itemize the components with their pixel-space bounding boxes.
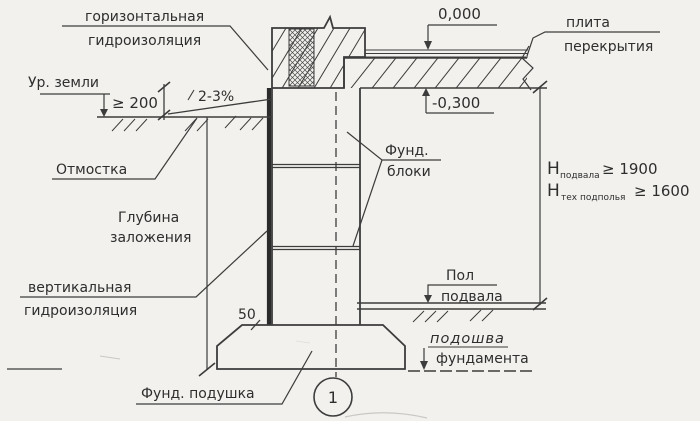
pad-label: Фунд. подушка — [141, 386, 255, 402]
dim-basement-height: H подвала ≥ 1900 H тех подполья ≥ 1600 — [533, 81, 690, 310]
floor-label-1: Пол — [446, 268, 474, 284]
node-number: 1 — [328, 388, 338, 407]
label-slab: плита перекрытия — [527, 15, 660, 56]
slab-label-2: перекрытия — [564, 39, 653, 55]
arrow-down-icon — [424, 41, 432, 50]
blocks-label-2: блоки — [387, 164, 431, 180]
footing-pad — [217, 325, 405, 369]
dim-elev-minus300: -0,300 — [422, 88, 494, 113]
label-blind-area: Отмостка — [52, 118, 197, 179]
elevation-minus-label: -0,300 — [432, 94, 480, 112]
h2-value: ≥ 1600 — [634, 182, 690, 200]
sole-label-2: фундамента — [436, 351, 529, 367]
label-foundation-pad: Фунд. подушка 50 — [136, 307, 312, 404]
arrow-down-icon — [420, 361, 428, 370]
horiz-wp-label-2: гидроизоляция — [88, 33, 201, 49]
dim-elev-zero: 0,000 — [424, 5, 497, 50]
arrow-down-icon — [100, 109, 108, 117]
label-basement-floor: Пол подвала — [424, 268, 503, 305]
h2-symbol: H — [547, 181, 560, 201]
h1-value: ≥ 1900 — [602, 160, 658, 178]
blind-area-label: Отмостка — [56, 162, 127, 178]
foundation-section-drawing: 0,000 -0,300 плита перекрытия горизонтал… — [0, 0, 700, 421]
elevation-zero-label: 0,000 — [438, 5, 481, 23]
dim-50-label: 50 — [238, 307, 256, 323]
vert-wp-label-1: вертикальная — [28, 280, 131, 296]
label-foundation-depth: Глубина заложения — [110, 117, 215, 376]
label-slope: 2-3% — [188, 89, 234, 105]
h1-subscript: подвала — [560, 171, 600, 181]
dim-200-label: ≥ 200 — [112, 94, 158, 112]
foundation-wall — [269, 88, 360, 377]
horizontal-waterproofing-strip — [289, 29, 314, 86]
label-ground-level: Ур. земли ≥ 200 — [28, 75, 170, 120]
slab-label-1: плита — [566, 15, 610, 31]
node-marker: 1 — [314, 378, 352, 416]
depth-label-1: Глубина — [118, 210, 179, 226]
horiz-wp-label-1: горизонтальная — [85, 9, 204, 25]
h1-symbol: H — [547, 159, 560, 179]
slab-break-mark — [522, 46, 533, 90]
arrow-up-icon — [422, 88, 430, 96]
ground-level-label: Ур. земли — [28, 75, 99, 91]
h2-subscript: тех подполья — [561, 193, 625, 203]
arrow-down-icon — [424, 295, 432, 303]
label-horizontal-waterproofing: горизонтальная гидроизоляция — [62, 9, 268, 70]
slope-label: 2-3% — [198, 89, 234, 105]
depth-label-2: заложения — [110, 230, 191, 246]
plinth-block — [240, 17, 404, 105]
floor-slab — [344, 46, 547, 92]
vert-wp-label-2: гидроизоляция — [24, 303, 137, 319]
sole-label-1: подошва — [430, 331, 505, 347]
label-foundation-blocks: Фунд. блоки — [347, 132, 441, 246]
floor-label-2: подвала — [441, 289, 503, 305]
scan-noise — [100, 341, 427, 418]
drawing-canvas: 0,000 -0,300 плита перекрытия горизонтал… — [0, 0, 700, 421]
label-footing-sole: подошва фундамента — [420, 331, 529, 370]
blocks-label-1: Фунд. — [385, 143, 429, 159]
